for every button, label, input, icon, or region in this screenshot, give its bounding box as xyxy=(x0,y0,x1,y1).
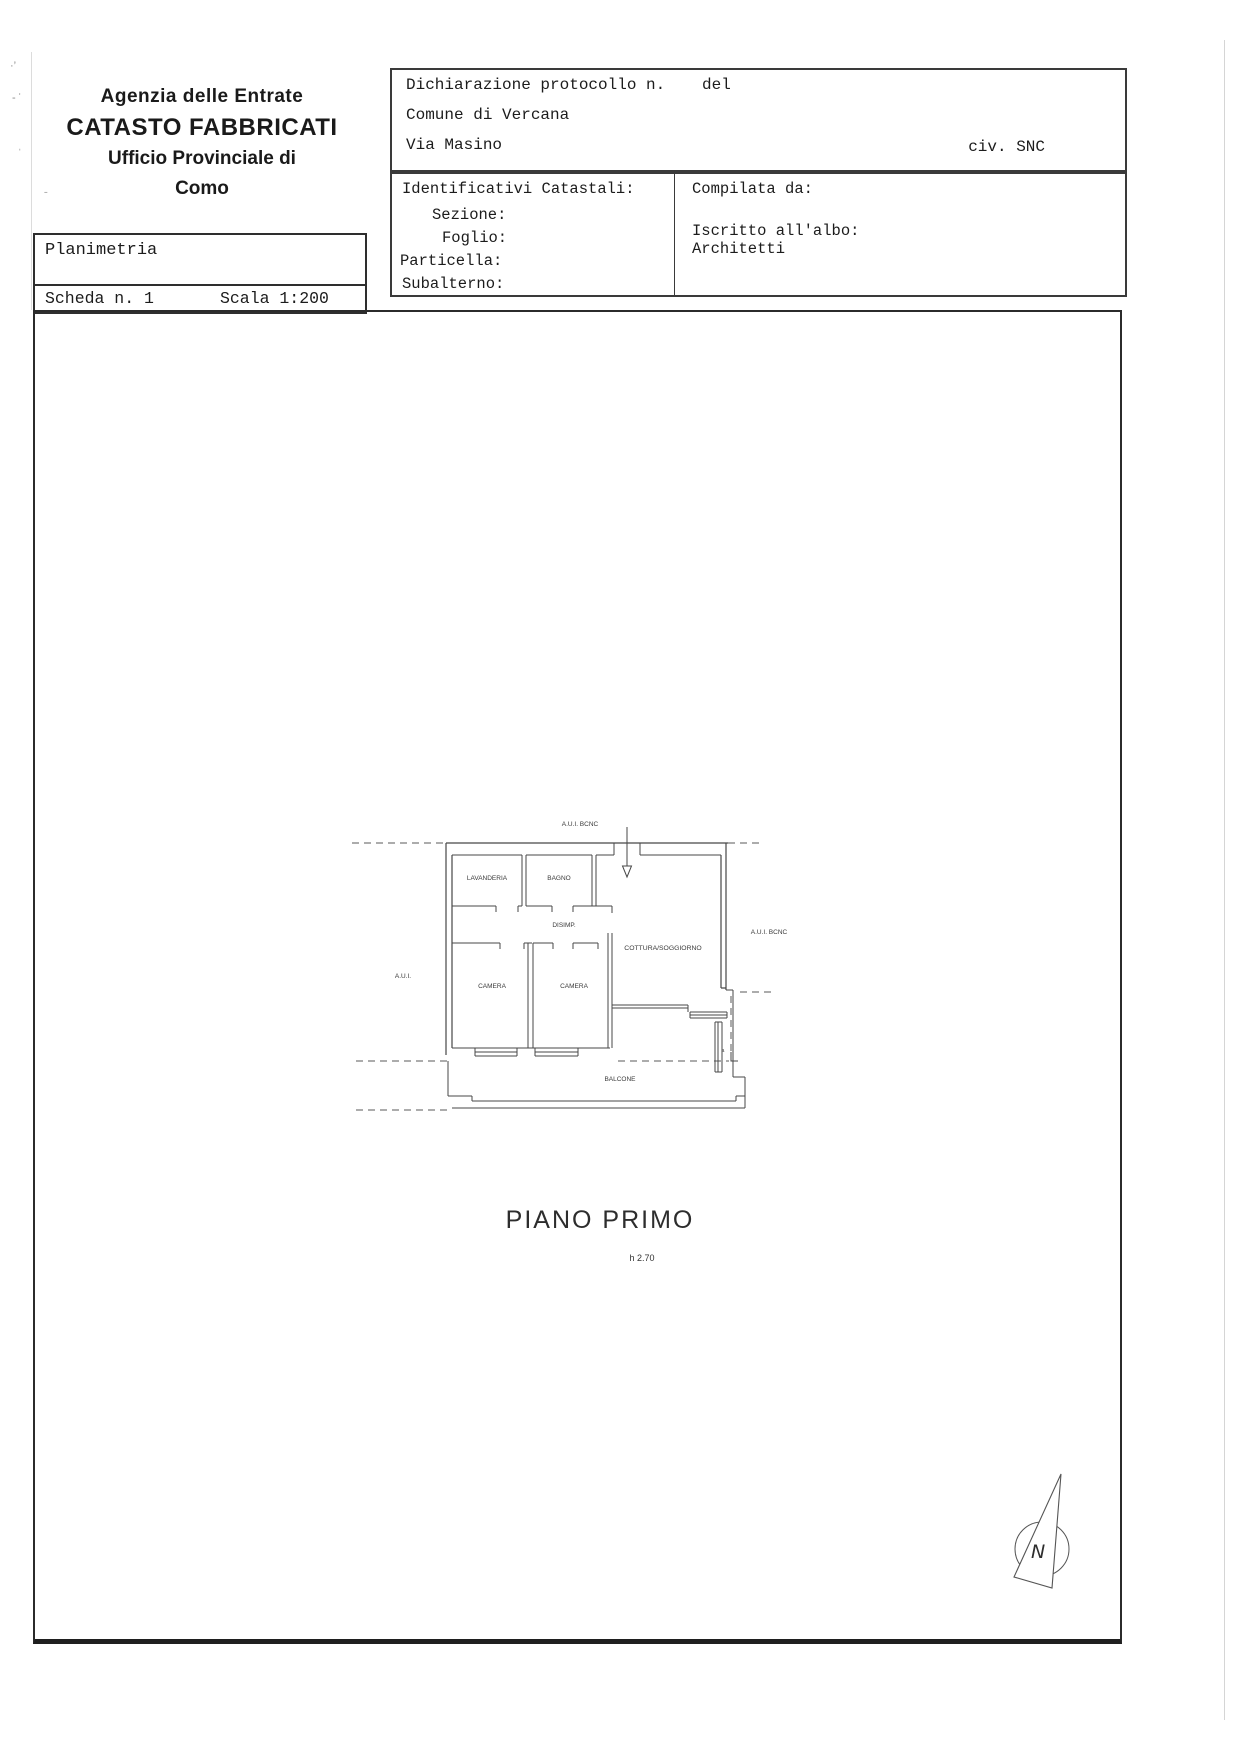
aui-bcnc-right-label: A.U.I. BCNC xyxy=(751,929,788,936)
scan-edge-left xyxy=(31,52,32,310)
planimetria-table: Planimetria Scheda n. 1 Scala 1:200 xyxy=(33,233,367,314)
property-dashed-lines xyxy=(352,843,774,1110)
civic-number: civ. SNC xyxy=(968,138,1045,156)
scan-speck: ˈ xyxy=(18,148,22,160)
corridor-walls xyxy=(452,943,598,949)
dashed-end-hook xyxy=(731,1052,738,1061)
document-page: ·’ - ʾ ˈ ˍ Agenzia delle Entrate CATASTO… xyxy=(0,0,1238,1753)
foglio-label: Foglio: xyxy=(442,229,507,247)
comune-value: Comune di Vercana xyxy=(406,106,569,124)
catasto-title: CATASTO FABBRICATI xyxy=(52,114,352,142)
north-arrow xyxy=(1014,1474,1061,1588)
street-value: Via Masino xyxy=(406,136,502,154)
entrance-opening xyxy=(596,843,721,906)
lavanderia-label: LAVANDERIA xyxy=(467,875,508,882)
camera-partition xyxy=(528,943,533,1048)
balcony-door-sill xyxy=(690,1012,727,1018)
camera-right-label: CAMERA xyxy=(560,983,588,990)
scala-value: Scala 1:200 xyxy=(220,289,329,308)
bagno-label: BAGNO xyxy=(547,875,570,882)
bagno-walls xyxy=(526,855,612,913)
camera-left-label: CAMERA xyxy=(478,983,506,990)
north-letter: N xyxy=(1031,1541,1045,1563)
sezione-label: Sezione: xyxy=(432,206,506,224)
box-divider xyxy=(674,174,675,295)
scan-speck: ·’ xyxy=(10,60,16,72)
camera-windows xyxy=(452,1048,610,1056)
side-window-sill xyxy=(715,1022,722,1072)
agency-header: Agenzia delle Entrate CATASTO FABBRICATI… xyxy=(52,86,352,200)
cottura-soggiorno-label: COTTURA/SOGGIORNO xyxy=(624,945,701,952)
aui-bcnc-top-label: A.U.I. BCNC xyxy=(562,821,599,828)
declaration-box: Dichiarazione protocollo n. del Comune d… xyxy=(390,68,1127,172)
subalterno-label: Subalterno: xyxy=(402,275,504,293)
balcony-outline xyxy=(448,1061,745,1108)
planimetria-label: Planimetria xyxy=(35,235,365,286)
agency-name: Agenzia delle Entrate xyxy=(52,86,352,108)
entrance-arrow-head xyxy=(623,866,632,877)
north-compass: N xyxy=(1000,1460,1100,1600)
right-step-walls xyxy=(726,990,745,1101)
lavanderia-walls xyxy=(452,855,522,912)
aui-left-label: A.U.I. xyxy=(395,973,411,980)
scan-speck: - ʾ xyxy=(12,92,22,104)
protocol-label: Dichiarazione protocollo n. xyxy=(406,76,665,94)
scheda-number: Scheda n. 1 xyxy=(45,289,154,308)
disimpegno-label: DISIMP. xyxy=(552,922,576,929)
province-name: Como xyxy=(52,178,352,200)
particella-label: Particella: xyxy=(400,252,502,270)
albo-value: Architetti xyxy=(692,240,785,258)
catastal-identifiers-box: Identificativi Catastali: Sezione: Fogli… xyxy=(390,172,1127,297)
catastal-title: Identificativi Catastali: xyxy=(402,180,635,198)
balcone-label: BALCONE xyxy=(604,1076,636,1083)
scan-edge-right xyxy=(1224,40,1225,1720)
del-label: del xyxy=(702,76,731,94)
compilata-label: Compilata da: xyxy=(692,180,813,198)
ref-a-label: a xyxy=(722,1048,725,1054)
scheda-row: Scheda n. 1 Scala 1:200 xyxy=(35,286,365,312)
scan-speck: ˍ xyxy=(44,182,48,194)
height-note: h 2.70 xyxy=(597,1253,687,1263)
office-line: Ufficio Provinciale di xyxy=(52,148,352,170)
floor-plan: A.U.I. BCNC LAVANDERIA BAGNO DISIMP. CAM… xyxy=(340,800,800,1135)
iscritto-label: Iscritto all'albo: xyxy=(692,222,859,240)
floor-title: PIANO PRIMO xyxy=(450,1206,750,1235)
